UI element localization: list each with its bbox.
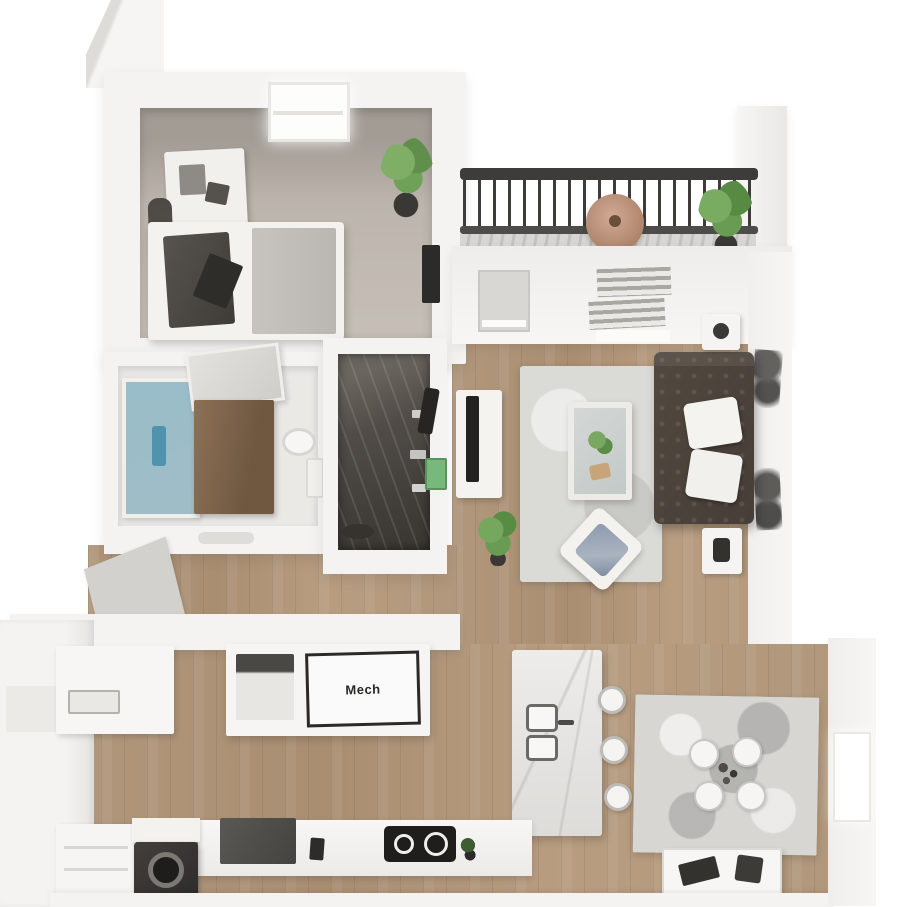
table-lamp: [713, 323, 729, 339]
window-mullion: [273, 111, 343, 115]
dining-window: [833, 732, 871, 822]
burner: [424, 832, 448, 856]
coffee-table-plant: [585, 428, 615, 458]
desk-item: [734, 854, 763, 883]
cabinet-items: [68, 690, 120, 714]
balcony-round-table: [586, 194, 644, 252]
bedroom-dresser: [164, 148, 248, 230]
accent-chair: [566, 514, 640, 586]
bedroom-wall-tv: [422, 245, 440, 303]
bedroom-plant: [380, 136, 434, 218]
living-room-right-wall: [748, 252, 792, 644]
closet-shelf: [410, 450, 426, 459]
closet-storage-bowl: [342, 524, 374, 539]
counter-plant: [458, 834, 480, 862]
burner: [394, 834, 414, 854]
living-room-floor-plant: [474, 506, 522, 566]
bar-stool: [598, 686, 626, 714]
closet-interior: [338, 354, 430, 550]
sofa-armrest: [654, 352, 754, 366]
sofa-pillow: [683, 396, 744, 450]
side-table-north: [702, 314, 740, 350]
wood-vanity: [194, 400, 274, 514]
toilet-tank: [306, 458, 324, 498]
bar-stool: [600, 736, 628, 764]
counter-item: [309, 838, 325, 861]
drawer-line: [64, 846, 128, 849]
patio-door: [478, 270, 530, 332]
balcony-railing-top: [460, 168, 758, 180]
table-centerpiece: [609, 215, 621, 227]
wall-art: [753, 467, 782, 530]
bar-stool: [604, 783, 632, 811]
washer-shelf: [132, 818, 200, 842]
kitchen-island: [512, 650, 602, 836]
door-threshold: [482, 320, 526, 327]
drawer-line: [64, 868, 128, 871]
window-blinds: [597, 267, 672, 298]
green-storage-box: [425, 458, 447, 490]
mech-label: Mech: [345, 681, 381, 697]
mech-closet-door: Mech: [305, 651, 421, 728]
bathroom-door-detail: [198, 532, 254, 544]
bedroom-window: [268, 82, 350, 142]
laptop: [678, 856, 720, 887]
faucet: [558, 720, 574, 725]
counter-appliance: [220, 818, 296, 864]
bed: [148, 222, 344, 340]
window-blinds: [588, 298, 665, 330]
dresser-item: [205, 182, 230, 206]
washer: [134, 842, 198, 898]
upper-cabinet: [56, 646, 174, 734]
floorplan-canvas: Mech: [0, 0, 907, 907]
closet-shelf: [412, 484, 426, 492]
lower-cabinet: [56, 824, 136, 894]
dining-table-centerpiece: [708, 754, 748, 792]
wall-art: [751, 349, 783, 409]
bottom-wall: [50, 893, 834, 907]
sink-basin: [526, 735, 558, 761]
bed-duvet: [252, 228, 336, 334]
glass-shower: [122, 378, 200, 518]
balcony-plant: [698, 178, 754, 256]
water-heater: [236, 654, 294, 720]
dresser-item: [179, 164, 207, 195]
mech-closet-unit: Mech: [226, 644, 430, 736]
window-sill: [596, 330, 670, 342]
washer-door: [148, 852, 184, 888]
toilet: [282, 428, 316, 456]
coffee-table-decor: [589, 462, 612, 481]
table-lamp: [713, 538, 730, 562]
sofa-pillow: [685, 448, 744, 504]
tv-stand: [456, 390, 502, 498]
shower-bottle: [152, 426, 166, 466]
glass-coffee-table: [568, 402, 632, 500]
console-desk: [662, 848, 782, 896]
living-room-tv: [466, 396, 479, 482]
cooktop: [384, 826, 456, 862]
side-table-south: [702, 528, 742, 574]
sink-basin: [526, 704, 558, 732]
